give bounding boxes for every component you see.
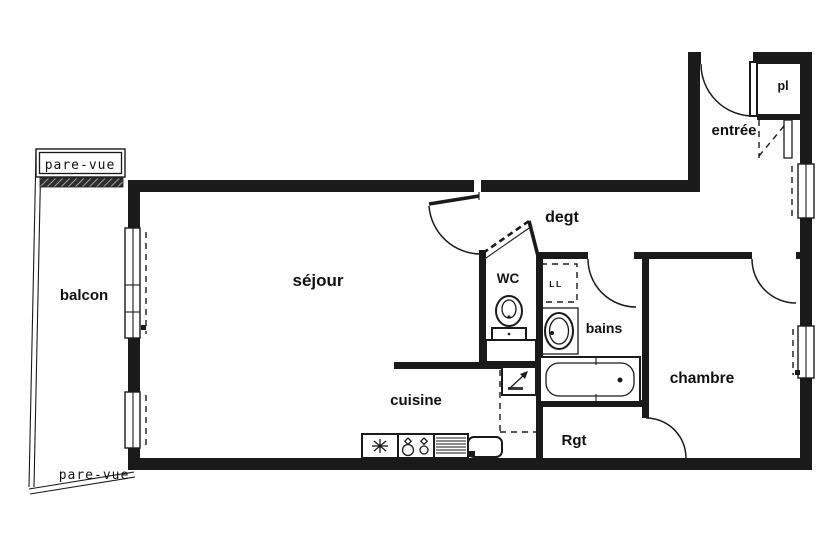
- wall-bains-top: [536, 252, 588, 259]
- wall-left-a: [128, 180, 140, 228]
- sejour-label: séjour: [292, 271, 343, 290]
- balcon-label: balcon: [60, 287, 108, 304]
- wall-degt-south: [634, 252, 752, 259]
- toilet-icon: [492, 296, 526, 340]
- window-right-1-icon: [792, 164, 814, 218]
- entry-door-icon: [701, 62, 757, 116]
- wall-chambre-west: [642, 252, 649, 418]
- wall-top-main: [128, 180, 700, 192]
- wc-label: WC: [497, 271, 520, 286]
- window-left-1-icon: [125, 228, 146, 338]
- exterior-walls: [128, 52, 812, 470]
- wall-chambre-top-stub: [796, 252, 812, 259]
- fridge-fan-icon: [362, 434, 398, 458]
- degt-label: degt: [545, 209, 579, 226]
- wall-rgt-west: [536, 404, 543, 458]
- rgt-door-icon: [646, 418, 686, 458]
- sejour-door-icon: [429, 192, 481, 254]
- drainboard-icon: [434, 434, 468, 458]
- washing-machine-label: LL: [549, 279, 562, 289]
- wall-pl-bottom: [757, 114, 800, 120]
- wall-right-lower: [800, 378, 812, 470]
- interior-walls: [394, 114, 812, 458]
- bains-label: bains: [586, 320, 623, 336]
- wall-entree-left: [688, 52, 700, 192]
- wall-left-b: [128, 338, 140, 392]
- rgt-label: Rgt: [562, 432, 587, 449]
- wall-top-notch: [474, 180, 481, 192]
- pare-vue-bottom-label: pare-vue: [59, 468, 130, 483]
- duct-arrow-icon: [502, 367, 536, 395]
- washbasin-icon: [540, 308, 578, 354]
- balcony: [29, 149, 135, 494]
- pl-label: pl: [777, 79, 788, 93]
- wall-left-c: [128, 448, 140, 470]
- window-left-2-icon: [125, 392, 146, 448]
- floor-plan-drawing: pare-vue balcon séjour degt entrée pl WC…: [0, 0, 840, 560]
- wall-bottom: [128, 458, 812, 470]
- bains-door-icon: [588, 259, 636, 307]
- wc-door-icon: [483, 221, 532, 258]
- pare-vue-top-label: pare-vue: [45, 158, 116, 173]
- wc-shelf: [486, 340, 536, 362]
- stove-burners-icon: [398, 434, 434, 458]
- bathtub-icon: [540, 357, 640, 402]
- wall-entree-top-left: [688, 52, 701, 64]
- wall-right-upper: [800, 52, 812, 164]
- entree-label: entrée: [711, 122, 756, 139]
- wall-wc-west: [479, 250, 486, 362]
- floor-plan-page: pare-vue balcon séjour degt entrée pl WC…: [0, 0, 840, 560]
- wall-right-mid: [800, 218, 812, 326]
- balcony-screen-hatch: [40, 178, 123, 187]
- cuisine-label: cuisine: [390, 392, 442, 409]
- windows: [125, 164, 814, 448]
- room-labels: pare-vue balcon séjour degt entrée pl WC…: [45, 79, 789, 483]
- chambre-label: chambre: [670, 370, 735, 387]
- sink-icon: [468, 437, 502, 457]
- wall-wc-corner-stub: [529, 221, 538, 256]
- window-right-2-icon: [793, 326, 814, 378]
- chambre-door-icon: [752, 259, 796, 303]
- fixtures: [362, 264, 640, 458]
